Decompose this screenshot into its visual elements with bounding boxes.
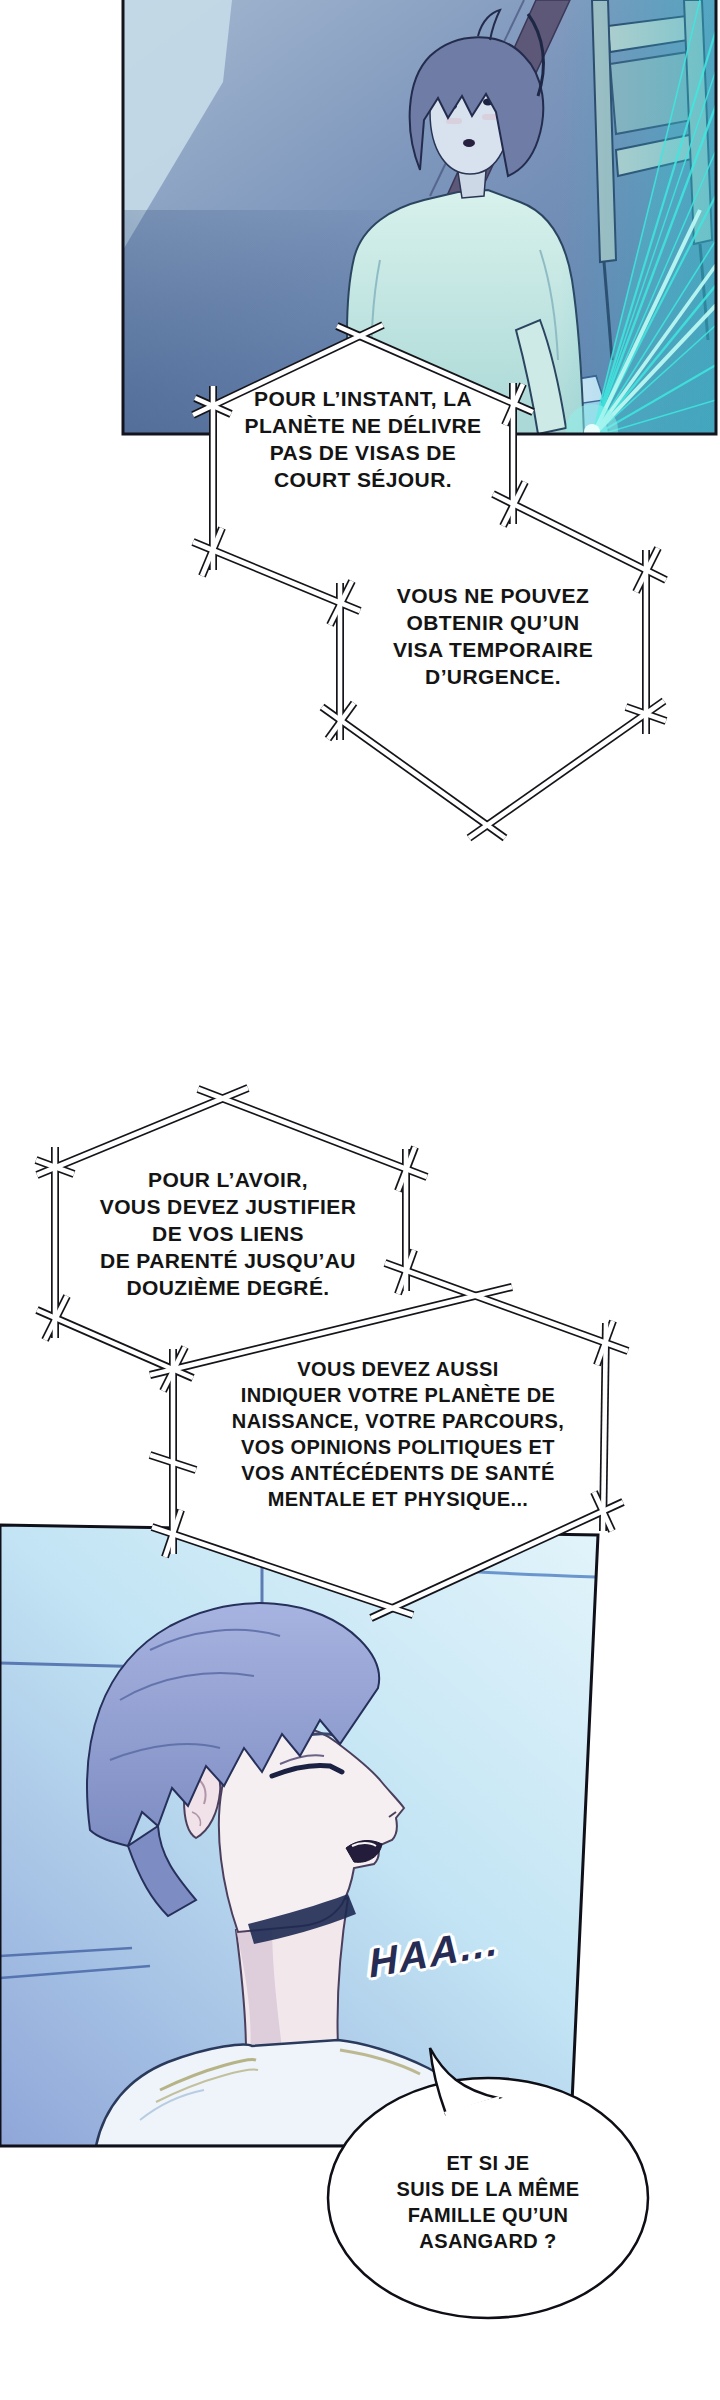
- bubble-line: INDIQUER VOTRE PLANÈTE DE: [232, 1382, 564, 1408]
- bubble-line: VOUS DEVEZ JUSTIFIER: [100, 1193, 357, 1220]
- bubble-line: D’URGENCE.: [393, 663, 593, 690]
- bubble-line: OBTENIR QU’UN: [393, 609, 593, 636]
- bubble-line: MENTALE ET PHYSIQUE...: [232, 1486, 564, 1512]
- panel-2: [0, 1525, 720, 2146]
- bubble-line: POUR L’INSTANT, LA: [244, 385, 481, 412]
- bubble-line: ASANGARD ?: [396, 2228, 579, 2254]
- bubble-line: VOUS DEVEZ AUSSI: [232, 1356, 564, 1382]
- mouth: [463, 139, 475, 147]
- bubble-line: POUR L’AVOIR,: [100, 1166, 357, 1193]
- bubble-line: VOS ANTÉCÉDENTS DE SANTÉ: [232, 1460, 564, 1486]
- narration-bubble-3-text: POUR L’AVOIR, VOUS DEVEZ JUSTIFIER DE VO…: [100, 1166, 357, 1301]
- narration-bubble-1-text: POUR L’INSTANT, LA PLANÈTE NE DÉLIVRE PA…: [244, 385, 481, 493]
- bubble-line: NAISSANCE, VOTRE PARCOURS,: [232, 1408, 564, 1434]
- narration-bubble-2-text: VOUS NE POUVEZ OBTENIR QU’UN VISA TEMPOR…: [393, 582, 593, 690]
- bubble-line: VOUS NE POUVEZ: [393, 582, 593, 609]
- narration-bubble-4-text: VOUS DEVEZ AUSSI INDIQUER VOTRE PLANÈTE …: [232, 1356, 564, 1512]
- bubble-line: PAS DE VISAS DE: [244, 439, 481, 466]
- bubble-line: PLANÈTE NE DÉLIVRE: [244, 412, 481, 439]
- hologram: [560, 0, 716, 456]
- comic-page: POUR L’INSTANT, LA PLANÈTE NE DÉLIVRE PA…: [0, 0, 720, 2400]
- bubble-line: DE PARENTÉ JUSQU’AU: [100, 1247, 357, 1274]
- speech-bubble-text: ET SI JE SUIS DE LA MÊME FAMILLE QU’UN A…: [396, 2150, 579, 2254]
- bubble-line: FAMILLE QU’UN: [396, 2202, 579, 2228]
- bubble-line: VISA TEMPORAIRE: [393, 636, 593, 663]
- bubble-line: SUIS DE LA MÊME: [396, 2176, 579, 2202]
- bubble-line: ET SI JE: [396, 2150, 579, 2176]
- bubble-line: VOS OPINIONS POLITIQUES ET: [232, 1434, 564, 1460]
- bubble-line: COURT SÉJOUR.: [244, 466, 481, 493]
- bubble-line: DOUZIÈME DEGRÉ.: [100, 1274, 357, 1301]
- bubble-line: DE VOS LIENS: [100, 1220, 357, 1247]
